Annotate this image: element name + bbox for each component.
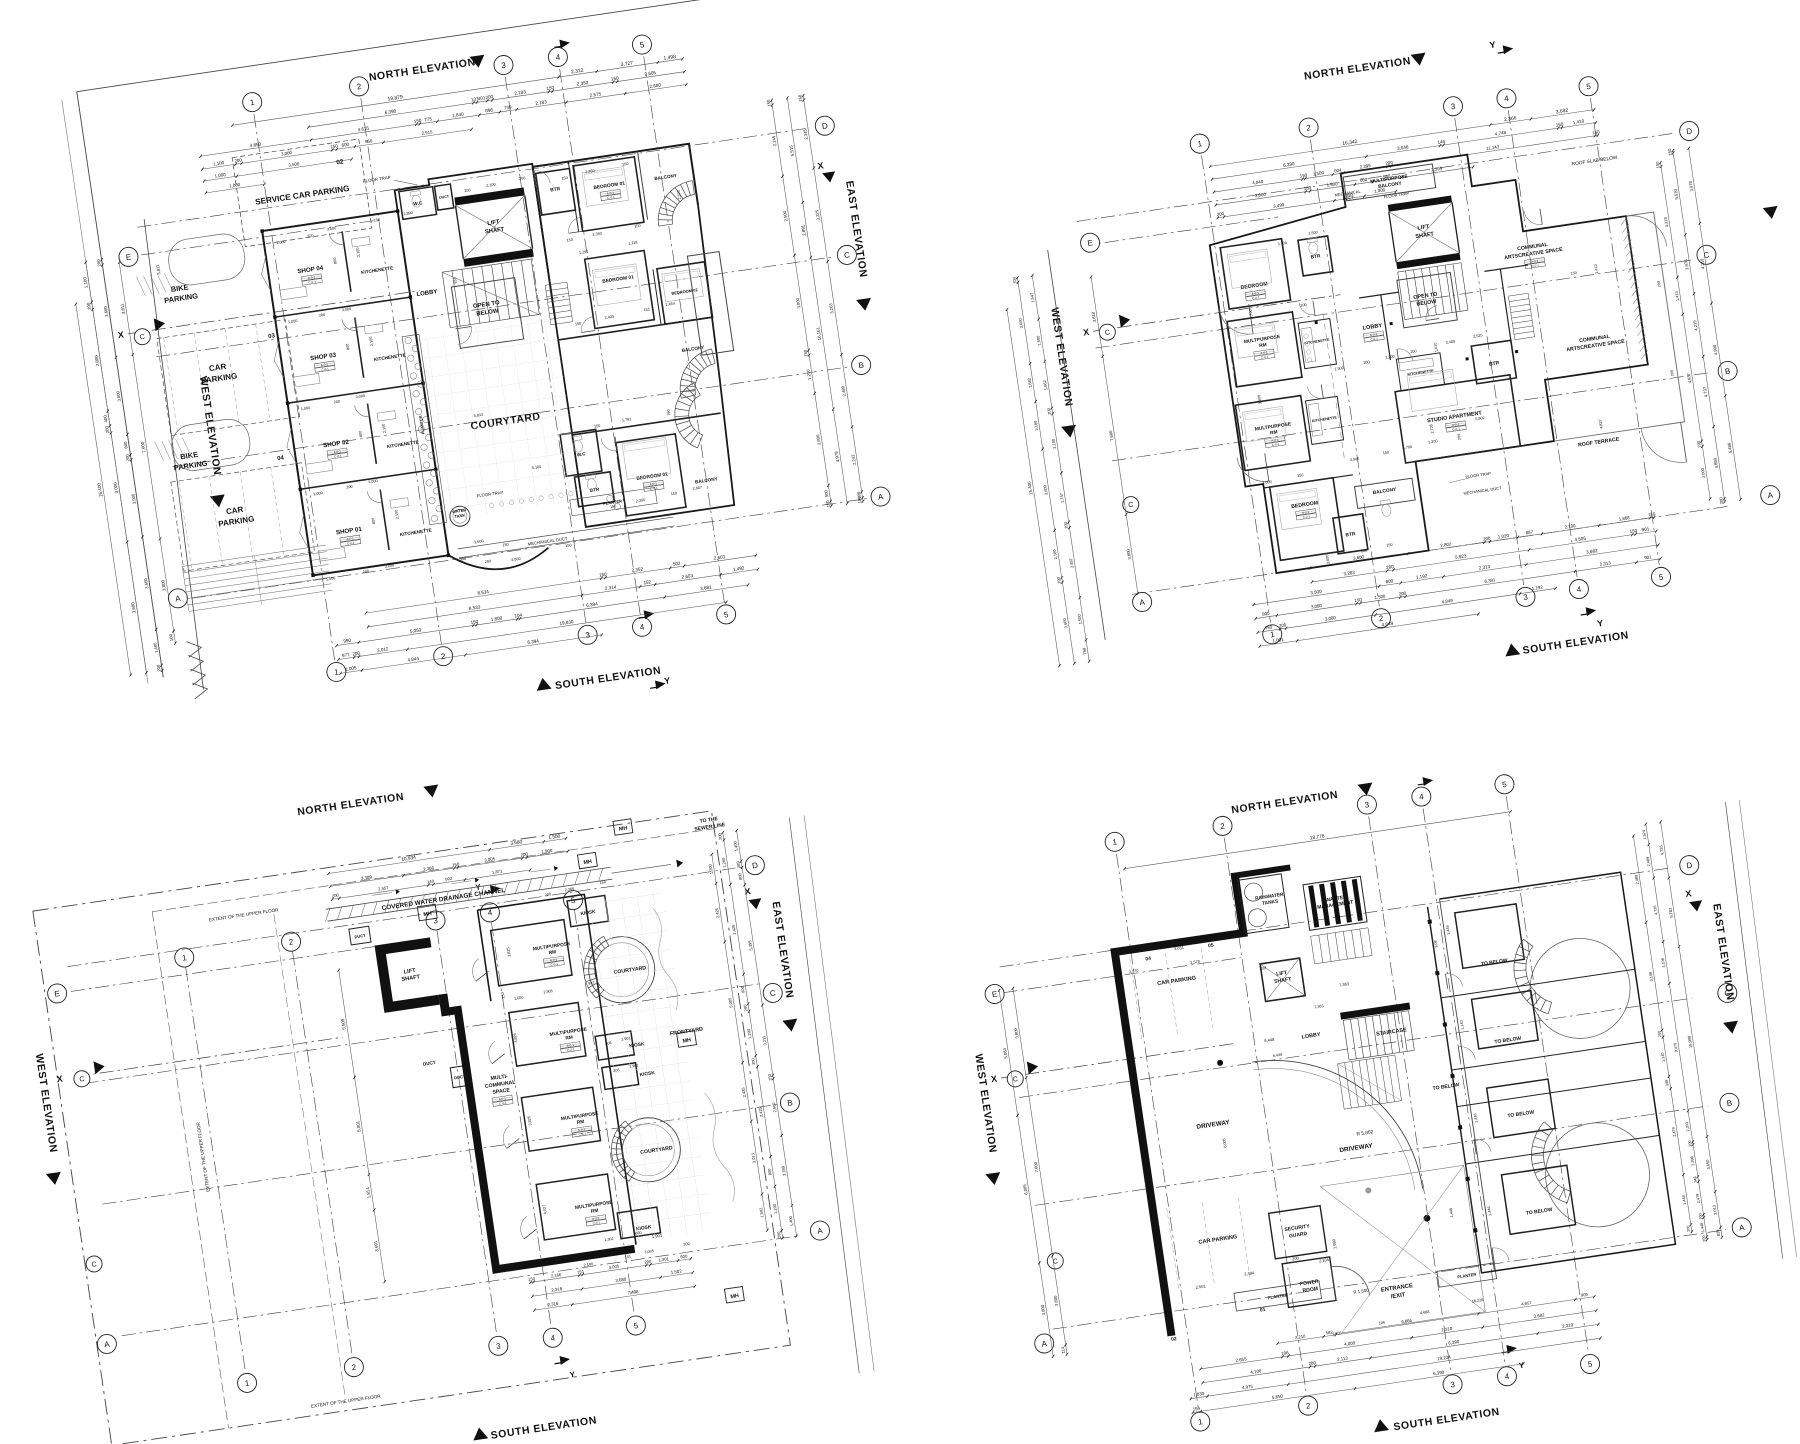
svg-text:RM: RM — [1259, 342, 1267, 349]
svg-text:C: C — [79, 1076, 85, 1084]
svg-text:MH: MH — [730, 1293, 739, 1300]
svg-text:C: C — [1104, 329, 1110, 337]
svg-text:02: 02 — [1171, 1336, 1178, 1343]
svg-text:RM: RM — [1270, 429, 1278, 436]
svg-text:C: C — [1012, 1076, 1018, 1084]
svg-text:RM: RM — [576, 1119, 584, 1126]
svg-text:C: C — [1128, 502, 1134, 510]
svg-text:MH: MH — [619, 825, 628, 832]
svg-text:RM: RM — [548, 949, 556, 956]
svg-text:RM: RM — [565, 1035, 573, 1042]
svg-text:C: C — [139, 334, 145, 342]
svg-text:C: C — [91, 1261, 97, 1269]
svg-text:RM: RM — [591, 1208, 599, 1215]
svg-text:05: 05 — [1208, 942, 1215, 949]
svg-text:MH: MH — [583, 859, 592, 866]
svg-text:04: 04 — [1145, 956, 1152, 963]
svg-text:02: 02 — [336, 158, 345, 166]
svg-text:MH: MH — [423, 911, 432, 918]
